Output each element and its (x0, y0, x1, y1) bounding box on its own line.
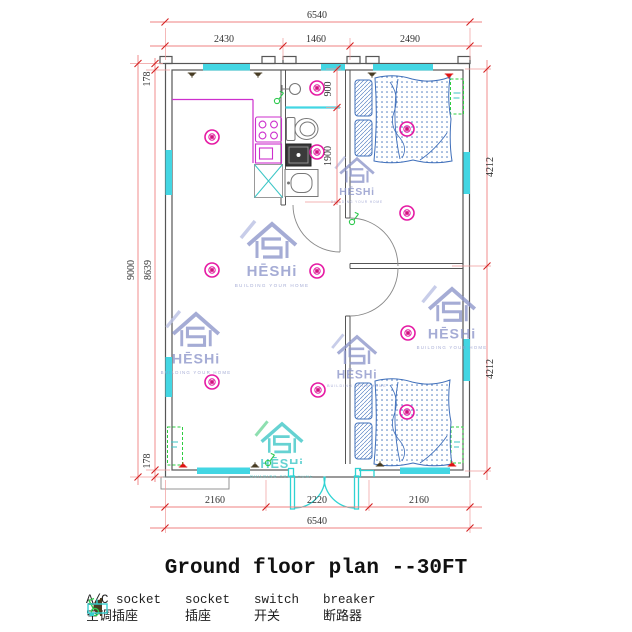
bedroom-door-top (350, 218, 398, 266)
dim-left-overall: 9000 (126, 260, 137, 280)
interior-doors (293, 205, 398, 316)
legend-socket-en: socket (185, 593, 230, 608)
bed-bottom (355, 379, 452, 466)
dim-right-lower: 4212 (485, 359, 496, 379)
heshi-watermark (331, 157, 383, 204)
legend-switch-en: switch (254, 593, 299, 608)
bathroom-sink (285, 170, 318, 197)
dim-left-inner: 8639 (143, 260, 154, 280)
sink-unit (255, 165, 283, 198)
window (464, 152, 471, 194)
legend-item-breaker: breaker 断路器 (323, 593, 376, 624)
bedroom-door-bottom (350, 268, 398, 316)
heshi-watermark (161, 311, 232, 375)
wall-column (262, 57, 275, 64)
bathroom-door (293, 205, 340, 252)
page-title: Ground floor plan --30FT (0, 557, 632, 580)
window (321, 64, 345, 71)
wall-column (347, 57, 360, 64)
dim-bottom-seg2: 2220 (307, 495, 327, 506)
socket-symbol (251, 462, 260, 467)
legend-socket-zh: 插座 (185, 608, 230, 624)
ceiling-light-symbol (310, 264, 324, 278)
wall-column (458, 57, 470, 64)
washing-machine (286, 144, 311, 166)
ceiling-light-symbol (310, 81, 324, 95)
floor-plan-page: HĒSHi BUILDING YOUR HOME (0, 0, 632, 632)
dim-wall-bottom: 178 (142, 454, 153, 469)
breaker-box (168, 427, 183, 465)
socket-symbol (254, 73, 263, 78)
ceiling-light-symbol (205, 130, 219, 144)
heshi-watermark (235, 221, 310, 288)
wall-column (366, 57, 379, 64)
switch-symbol (274, 91, 283, 103)
dim-top-seg2: 1460 (306, 34, 326, 45)
dim-bottom-overall: 6540 (307, 516, 327, 527)
ceiling-light-symbol (400, 206, 414, 220)
ceiling-light-symbol (205, 263, 219, 277)
legend-switch-zh: 开关 (254, 608, 299, 624)
legend-item-switch: switch 开关 (254, 593, 299, 624)
legend-item-socket: socket 插座 (185, 593, 230, 624)
window (400, 468, 450, 475)
kitchen-area (172, 100, 283, 198)
ceiling-light-symbol (311, 383, 325, 397)
dim-wall-top: 178 (142, 72, 153, 87)
floor-plan-drawing: HĒSHi BUILDING YOUR HOME (0, 0, 632, 632)
window (197, 468, 250, 475)
ceiling-light-symbol (401, 326, 415, 340)
breaker-box (451, 427, 463, 463)
breaker-icon (86, 596, 110, 618)
dim-bottom-seg1: 2160 (205, 495, 225, 506)
dim-right-upper: 4212 (485, 157, 496, 177)
kitchen-cabinet (256, 144, 282, 163)
kitchen-counter (172, 100, 253, 164)
breaker-box (451, 79, 464, 114)
legend-breaker-zh: 断路器 (323, 608, 376, 624)
dim-top-seg3: 2490 (400, 34, 420, 45)
ceiling-light-symbol (205, 375, 219, 389)
entry-double-door (289, 464, 375, 509)
wall-column (160, 57, 172, 64)
legend-breaker-en: breaker (323, 593, 376, 608)
dim-bath-lower: 1900 (323, 146, 334, 166)
bed-top (355, 76, 452, 163)
ceiling-light-symbol (310, 145, 324, 159)
bathroom (282, 84, 340, 197)
wall-column (283, 57, 296, 64)
window (166, 150, 173, 195)
stove (256, 117, 282, 142)
window (203, 64, 250, 71)
dim-bottom-seg3: 2160 (409, 495, 429, 506)
toilet (287, 118, 319, 141)
socket-symbol (188, 73, 197, 78)
dim-top-seg1: 2430 (214, 34, 234, 45)
heshi-watermark (417, 286, 488, 350)
dim-bath-upper: 900 (323, 82, 334, 97)
entry-step (161, 477, 229, 489)
socket-symbol (368, 73, 377, 78)
dim-top-overall: 6540 (307, 10, 327, 21)
legend: A/C socket 空调插座 socket 插座 switch 开关 (86, 593, 586, 624)
shower-head (282, 84, 301, 95)
window (373, 64, 433, 71)
